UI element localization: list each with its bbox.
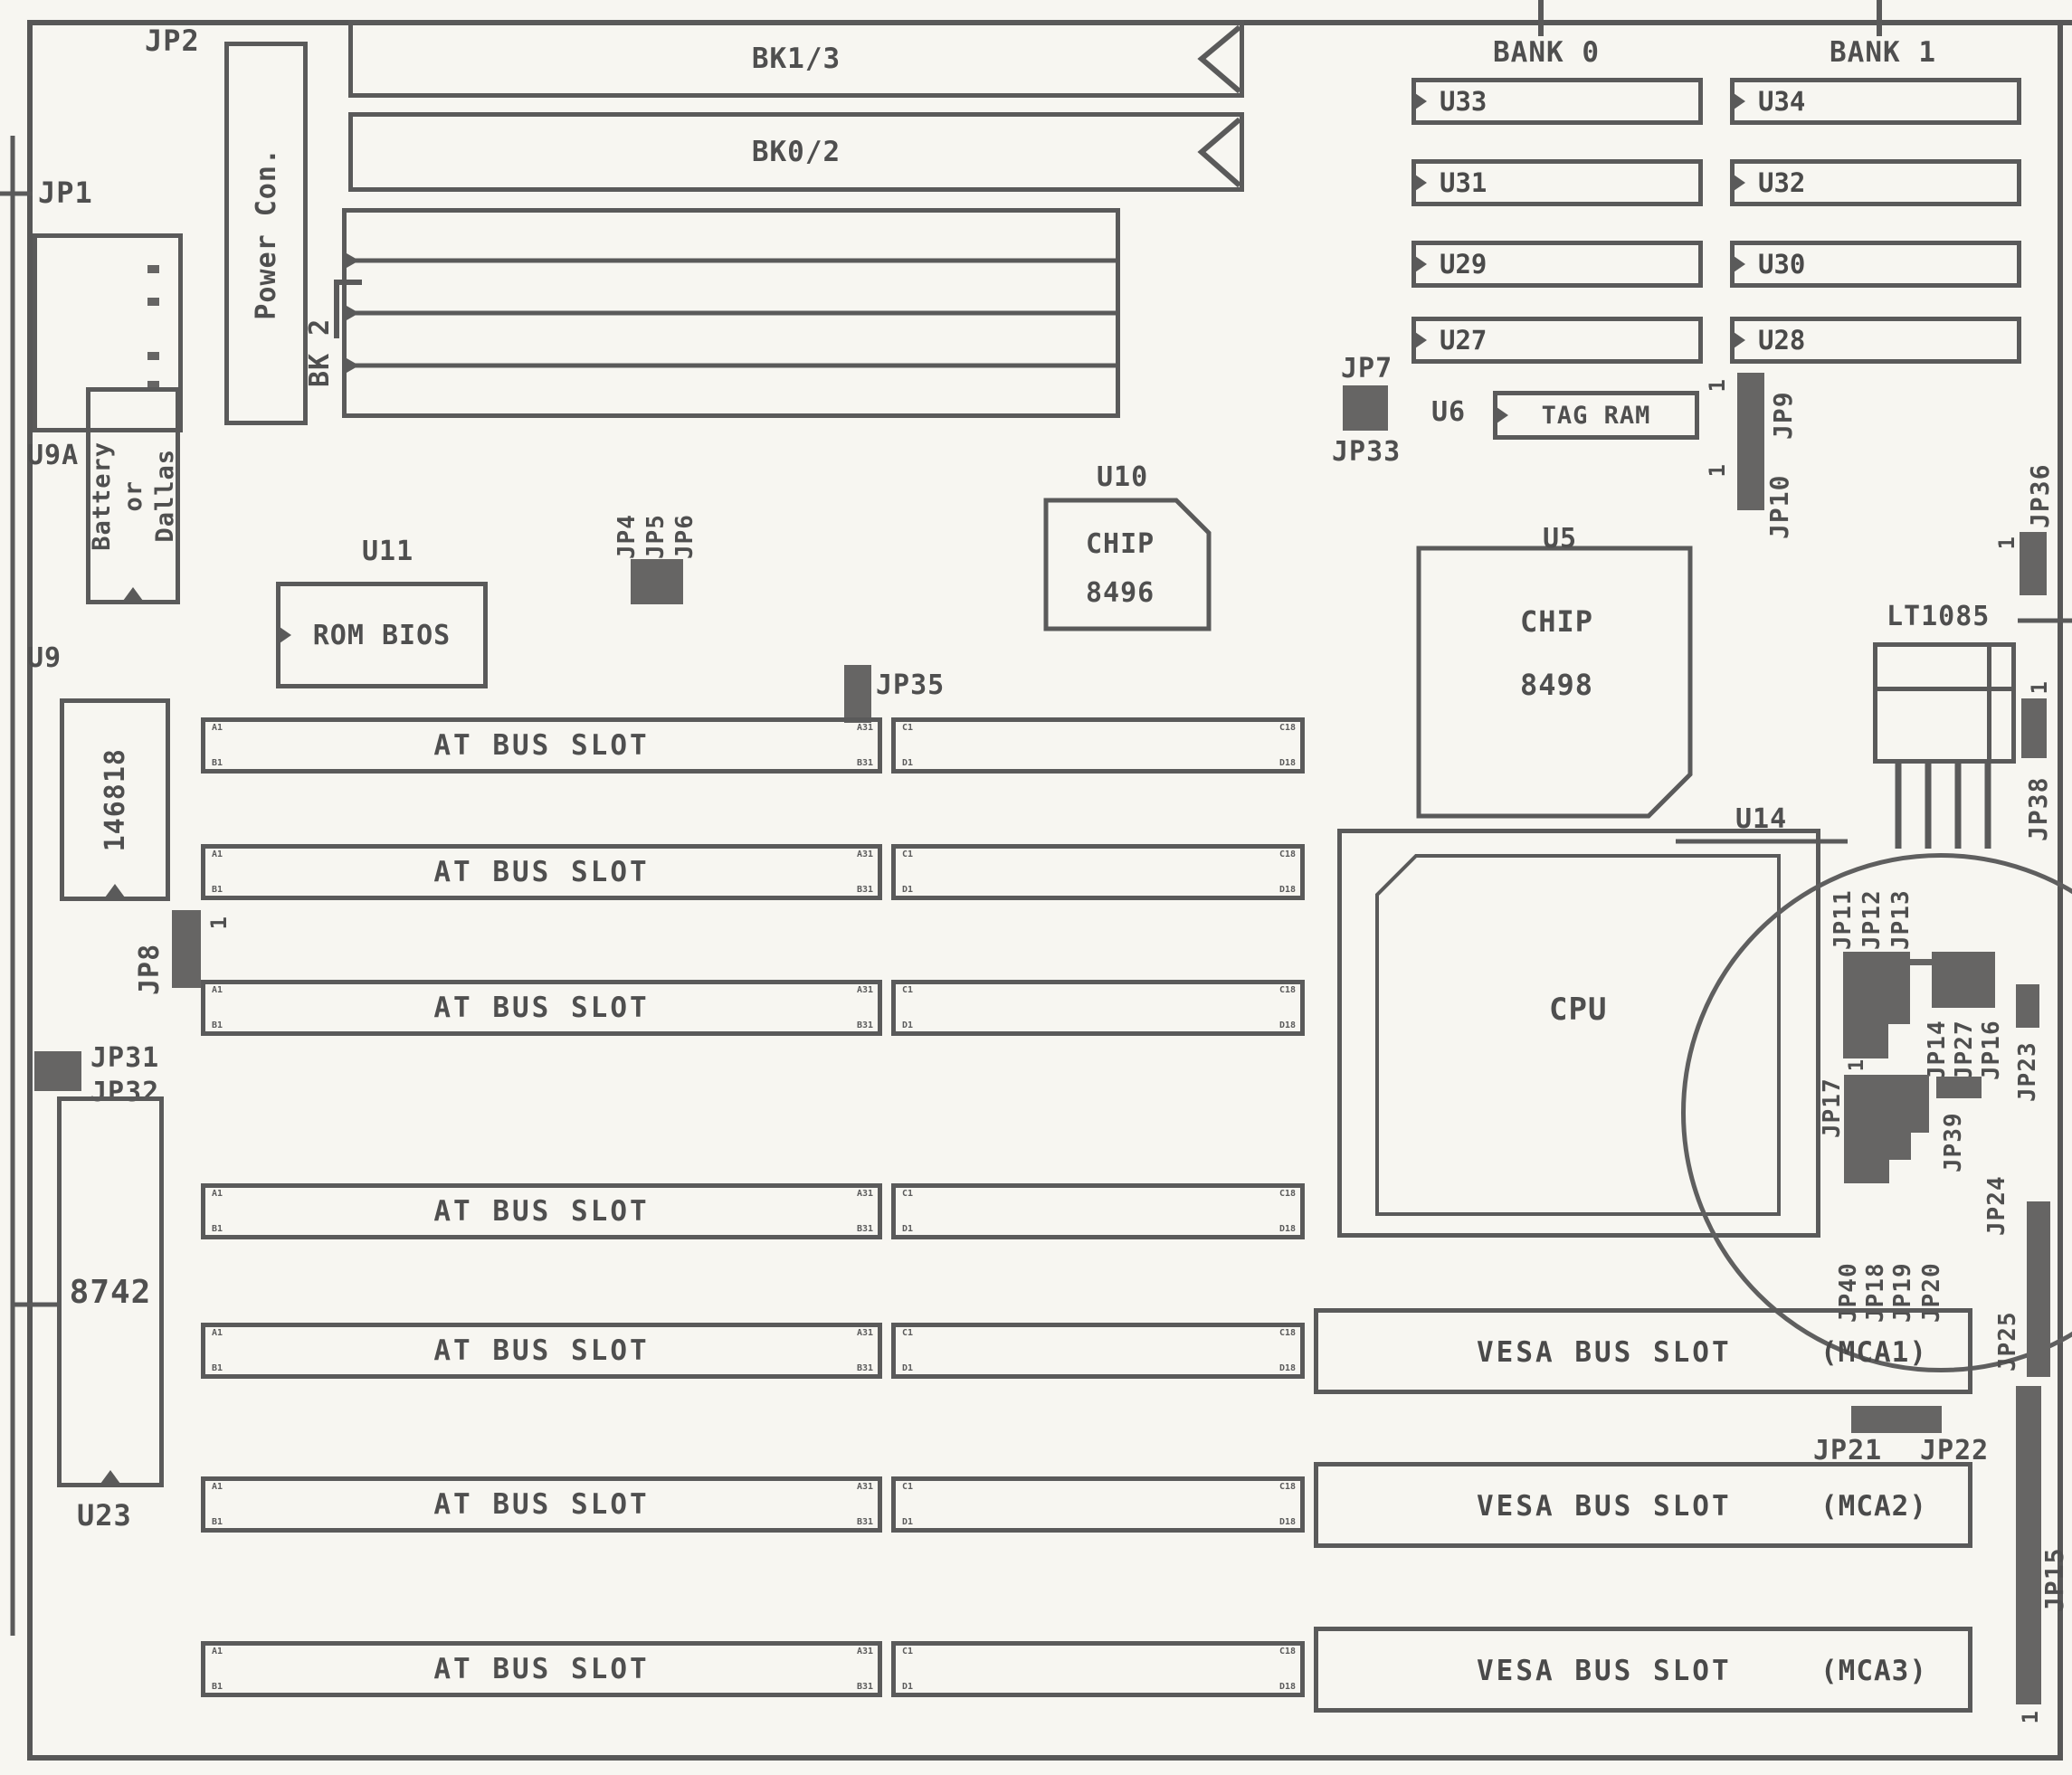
slot-pin-label: B31 [857, 1020, 873, 1030]
jp5-label: JP5 [642, 496, 670, 559]
slot-pin-label: B1 [212, 1224, 223, 1234]
slot-pin-label: A1 [212, 1189, 223, 1199]
slot-pin-label: D1 [902, 1363, 913, 1373]
jp38-label: JP38 [2023, 765, 2053, 841]
u10-label: U10 [1097, 461, 1148, 493]
slot-pin-label: C1 [902, 1647, 913, 1656]
slot-pin-label: B31 [857, 1363, 873, 1373]
slot-pin-label: A31 [857, 723, 873, 733]
jp35-label: JP35 [876, 669, 945, 701]
at-slot-segment-62pin: A1 B1 AT BUS SLOT A31 B31 [201, 1183, 882, 1239]
slot-pin-label: B1 [212, 1682, 223, 1692]
ram-chip-u27: U27 [1411, 317, 1703, 364]
slot-pin-label: D1 [902, 1517, 913, 1527]
slot-pin-label: D1 [902, 1224, 913, 1234]
slot-pin-label: B1 [212, 1363, 223, 1373]
jp39-jumper-block [1936, 1077, 1982, 1098]
slot-pin-label: A31 [857, 1328, 873, 1338]
slot-pin-label: B1 [212, 1517, 223, 1527]
battery-label-line2: or [119, 480, 147, 512]
jp36-jumper-block [2020, 532, 2047, 595]
slot-pin-label: B1 [212, 885, 223, 895]
slot-pin-label: D1 [902, 1682, 913, 1692]
slot-pin-label: A31 [857, 1482, 873, 1492]
jp36-pin1-mark: 1 [1994, 536, 2020, 549]
jp31-jp32-jumper-block [34, 1051, 81, 1091]
power-connector-label: Power Con. [251, 147, 282, 320]
ram-chip-u33: U33 [1411, 78, 1703, 125]
at-slot-segment-62pin: A1 B1 AT BUS SLOT A31 B31 [201, 980, 882, 1036]
jumper-connector-line [1910, 959, 1932, 965]
slot-pin-label: A31 [857, 1647, 873, 1656]
slot-pin-label: A1 [212, 1328, 223, 1338]
jp1-pin-mark [147, 265, 159, 273]
slot-pin-label: B1 [212, 1020, 223, 1030]
keyboard-controller-8742: 8742 [57, 1096, 164, 1487]
jp36-label: JP36 [2025, 452, 2055, 528]
jp35-jumper-block [844, 665, 871, 723]
slot-pin-label: C18 [1279, 1482, 1296, 1492]
at-bus-slot-label: AT BUS SLOT [433, 1195, 649, 1228]
jp7-label: JP7 [1341, 353, 1392, 384]
slot-pin-label: A1 [212, 850, 223, 859]
u5-label: U5 [1543, 523, 1577, 555]
slot-pin-label: D18 [1279, 1224, 1296, 1234]
jp7-jp33-jumper-block [1343, 385, 1388, 431]
battery-label-line3: Dallas [151, 449, 179, 543]
slot-pin-label: D18 [1279, 1363, 1296, 1373]
slot-pin-label: D1 [902, 885, 913, 895]
jp17-20-jumper-block-step1 [1844, 1133, 1911, 1160]
jp1-label: JP1 [38, 176, 93, 210]
jp15-pin1-mark: 1 [2018, 1710, 2043, 1723]
mca3-label: (MCA3) [1820, 1655, 1927, 1687]
slot-pin-label: D1 [902, 1020, 913, 1030]
slot-pin-label: B1 [212, 758, 223, 768]
slot-pin-label: D1 [902, 758, 913, 768]
slot-pin-label: D18 [1279, 1020, 1296, 1030]
slot-pin-label: A1 [212, 1482, 223, 1492]
battery-label-line1: Battery [88, 441, 116, 551]
at-bus-slot-label: AT BUS SLOT [433, 1488, 649, 1521]
memory-slot-bk02: BK0/2 [348, 112, 1244, 192]
ram-chip-u30: U30 [1730, 241, 2021, 288]
slot-pin-label: B31 [857, 1682, 873, 1692]
kbc-label: 8742 [70, 1274, 152, 1311]
at-slot-segment-36pin: C1 D1 C18 D18 [891, 1323, 1305, 1379]
u9a-label: U9A [27, 440, 79, 471]
u32-label: U32 [1758, 167, 1805, 198]
rom-bios-label: ROM BIOS [313, 620, 451, 651]
u28-label: U28 [1758, 325, 1805, 356]
mca2-label: (MCA2) [1820, 1490, 1927, 1523]
u34-label: U34 [1758, 86, 1805, 117]
bk13-label: BK1/3 [752, 43, 841, 75]
bank1-label: BANK 1 [1830, 36, 1936, 69]
jp17-pin1-mark: 1 [1846, 1058, 1868, 1071]
slot-pin-label: C1 [902, 985, 913, 995]
jp23-label: JP23 [2014, 1033, 2041, 1102]
u30-label: U30 [1758, 249, 1805, 280]
power-connector: Power Con. [224, 42, 308, 425]
jp6-label: JP6 [671, 496, 699, 559]
slot-pin-label: A1 [212, 1647, 223, 1656]
jp31-label: JP31 [90, 1042, 159, 1074]
u10-chip-text: CHIP [1086, 528, 1155, 560]
slot-pin-label: C1 [902, 1482, 913, 1492]
ram-chip-u29: U29 [1411, 241, 1703, 288]
u10-chip-number: 8496 [1086, 577, 1155, 609]
jp9-pin1-mark: 1 [1705, 378, 1730, 392]
ram-chip-u34: U34 [1730, 78, 2021, 125]
at-bus-slot-row: A1 B1 AT BUS SLOT A31 B31 C1 D1 C18 D18 [0, 844, 2072, 900]
jp17-20-jumper-block-step2 [1844, 1160, 1889, 1183]
slot-pin-label: C1 [902, 850, 913, 859]
jp1-pin-mark [147, 298, 159, 306]
at-slot-segment-62pin: A1 B1 AT BUS SLOT A31 B31 [201, 717, 882, 774]
slot-pin-label: B31 [857, 758, 873, 768]
slot-pin-label: A1 [212, 985, 223, 995]
slot-pin-label: C1 [902, 1189, 913, 1199]
jp10-pin1-mark: 1 [1705, 463, 1730, 477]
u5-chip-number: 8498 [1520, 668, 1593, 702]
jp8-jumper-block [172, 910, 201, 988]
slot-pin-label: A31 [857, 985, 873, 995]
at-slot-segment-62pin: A1 B1 AT BUS SLOT A31 B31 [201, 1641, 882, 1697]
slot-pin-label: C1 [902, 723, 913, 733]
jp2-label: JP2 [145, 24, 200, 58]
jp8-pin1-mark: 1 [206, 916, 232, 929]
vesa-bus-slot-mca2: VESA BUS SLOT (MCA2) [1314, 1462, 1972, 1548]
slot-pin-label: D18 [1279, 1682, 1296, 1692]
lt1085-label: LT1085 [1887, 601, 1990, 632]
slot-pin-label: D18 [1279, 885, 1296, 895]
battery-socket: Battery or Dallas [86, 387, 180, 604]
motherboard-diagram: JP2 Power Con. JP1 U9A BK1/3 BK0/2 BK 2 … [0, 0, 2072, 1775]
jp17-20-jumper-block [1844, 1075, 1929, 1133]
vesa-bus-slot-mca1: VESA BUS SLOT (MCA1) [1314, 1308, 1972, 1394]
slot-pin-label: C1 [902, 1328, 913, 1338]
at-slot-segment-62pin: A1 B1 AT BUS SLOT A31 B31 [201, 844, 882, 900]
at-bus-slot-label: AT BUS SLOT [433, 1334, 649, 1367]
slot-pin-label: A31 [857, 1189, 873, 1199]
at-bus-slot-label: AT BUS SLOT [433, 856, 649, 888]
u9-label: U9 [27, 642, 62, 674]
slot-pin-label: C18 [1279, 850, 1296, 859]
jp10-label: JP10 [1764, 460, 1794, 539]
u31-label: U31 [1440, 167, 1487, 198]
slot-pin-label: B31 [857, 885, 873, 895]
ram-chip-u31: U31 [1411, 159, 1703, 206]
jp4-jp5-jp6-jumper-block [631, 559, 683, 604]
at-slot-segment-36pin: C1 D1 C18 D18 [891, 1183, 1305, 1239]
at-slot-segment-36pin: C1 D1 C18 D18 [891, 1476, 1305, 1533]
vesa-slot-label: VESA BUS SLOT [1477, 1655, 1732, 1687]
vesa-slot-label: VESA BUS SLOT [1477, 1490, 1732, 1523]
at-bus-slot-label: AT BUS SLOT [433, 729, 649, 762]
at-bus-slot-row: A1 B1 AT BUS SLOT A31 B31 C1 D1 C18 D18 [0, 717, 2072, 774]
tag-ram-chip: TAG RAM [1493, 391, 1699, 440]
jp17-label: JP17 [1819, 1066, 1846, 1138]
jp1-pin-mark [147, 352, 159, 360]
bk02-label: BK0/2 [752, 136, 841, 168]
at-bus-slot-label: AT BUS SLOT [433, 992, 649, 1024]
at-bus-slot-row: A1 B1 AT BUS SLOT A31 B31 C1 D1 C18 D18 [0, 980, 2072, 1036]
slot-pin-label: C18 [1279, 1647, 1296, 1656]
slot-pin-label: C18 [1279, 723, 1296, 733]
u27-label: U27 [1440, 325, 1487, 356]
slot-pin-label: A31 [857, 850, 873, 859]
at-slot-segment-36pin: C1 D1 C18 D18 [891, 1641, 1305, 1697]
vesa-bus-slot-mca3: VESA BUS SLOT (MCA3) [1314, 1627, 1972, 1713]
at-bus-slot-row: A1 B1 AT BUS SLOT A31 B31 C1 D1 C18 D18 [0, 1183, 2072, 1239]
bank0-label: BANK 0 [1493, 36, 1600, 69]
vesa-slot-label: VESA BUS SLOT [1477, 1336, 1732, 1369]
ram-chip-u28: U28 [1730, 317, 2021, 364]
ram-chip-u32: U32 [1730, 159, 2021, 206]
rom-bios-chip: ROM BIOS [276, 582, 488, 688]
memory-slot-bk13: BK1/3 [348, 20, 1244, 98]
at-slot-segment-36pin: C1 D1 C18 D18 [891, 844, 1305, 900]
mca1-label: (MCA1) [1820, 1336, 1927, 1369]
slot-pin-label: A1 [212, 723, 223, 733]
at-slot-segment-62pin: A1 B1 AT BUS SLOT A31 B31 [201, 1476, 882, 1533]
at-slot-segment-62pin: A1 B1 AT BUS SLOT A31 B31 [201, 1323, 882, 1379]
jp38-pin1-mark: 1 [2027, 680, 2052, 694]
slot-pin-label: C18 [1279, 1189, 1296, 1199]
u11-label: U11 [362, 536, 413, 567]
bk2-label: BK 2 [304, 261, 336, 387]
u6-label: U6 [1431, 396, 1466, 428]
at-bus-slot-label: AT BUS SLOT [433, 1653, 649, 1685]
slot-pin-label: B31 [857, 1517, 873, 1527]
jp9-jp10-jumper-block [1737, 373, 1764, 510]
tag-ram-label: TAG RAM [1542, 402, 1651, 430]
at-slot-segment-36pin: C1 D1 C18 D18 [891, 980, 1305, 1036]
jp21-jp22-jumper-block [1851, 1406, 1942, 1433]
slot-pin-label: B31 [857, 1224, 873, 1234]
u29-label: U29 [1440, 249, 1487, 280]
jp4-label: JP4 [613, 496, 641, 559]
simm-bank-bk2 [342, 208, 1120, 418]
u33-label: U33 [1440, 86, 1487, 117]
jp39-label: JP39 [1940, 1104, 1967, 1172]
slot-pin-label: D18 [1279, 1517, 1296, 1527]
at-slot-segment-36pin: C1 D1 C18 D18 [891, 717, 1305, 774]
slot-pin-label: C18 [1279, 1328, 1296, 1338]
u5-chip-text: CHIP [1520, 604, 1593, 639]
slot-pin-label: C18 [1279, 985, 1296, 995]
jp33-label: JP33 [1332, 436, 1401, 468]
jp9-label: JP9 [1768, 375, 1798, 440]
slot-pin-label: D18 [1279, 758, 1296, 768]
